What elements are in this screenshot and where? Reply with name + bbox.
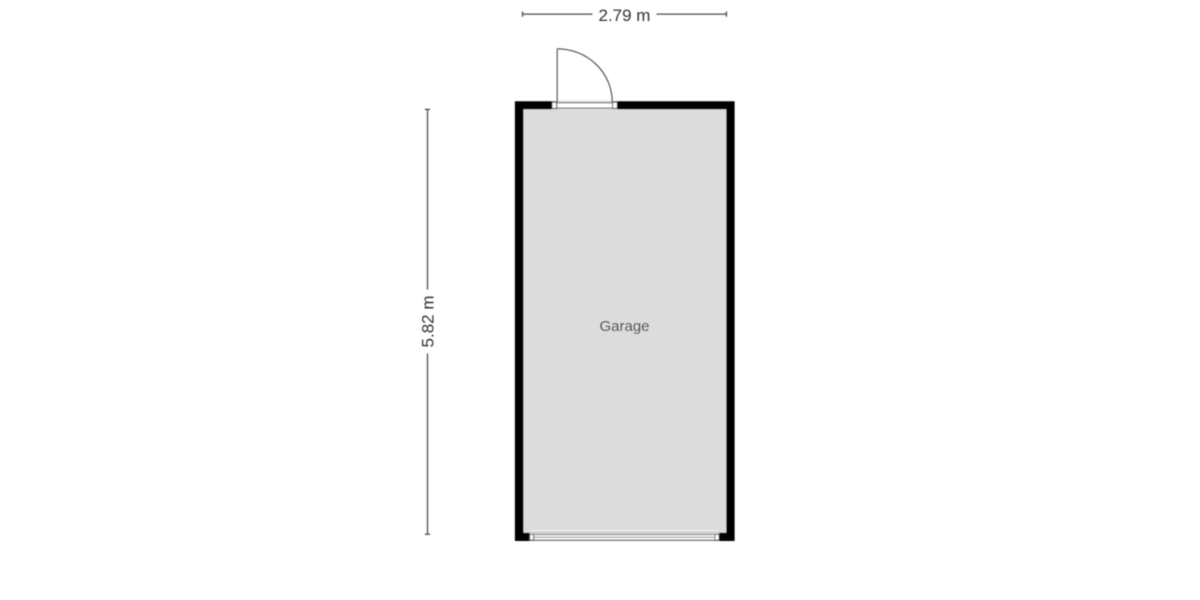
svg-text:2.79 m: 2.79 m [599,6,651,25]
svg-text:Garage: Garage [599,318,649,335]
svg-text:5.82 m: 5.82 m [419,296,438,348]
